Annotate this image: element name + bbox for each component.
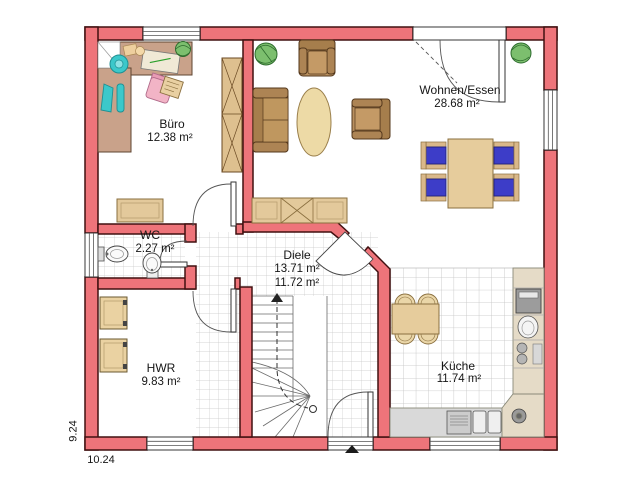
kitchen-counter-right bbox=[513, 268, 544, 394]
dimension-width: 10.24 bbox=[87, 454, 115, 467]
dining-chair bbox=[421, 174, 446, 201]
dining-table bbox=[448, 139, 493, 208]
room-area-buero: 12.38 m² bbox=[147, 132, 192, 145]
window-buero bbox=[143, 27, 200, 40]
desk-plant-icon bbox=[176, 42, 191, 57]
dimension-height: 9.24 bbox=[68, 420, 81, 441]
wall-bottom-3 bbox=[373, 437, 430, 450]
floor-plan-canvas: Büro 12.38 m² Wohnen/Essen 28.68 m² WC 2… bbox=[0, 0, 640, 480]
window-kueche bbox=[430, 437, 500, 450]
kitchen-counter-bottom bbox=[390, 408, 502, 437]
cooktop-burner bbox=[517, 343, 527, 353]
wohnen-sideboard bbox=[252, 198, 347, 223]
wall-bottom-2 bbox=[193, 437, 328, 450]
room-label-hwr: HWR bbox=[147, 362, 176, 375]
dishwasher bbox=[447, 411, 471, 434]
armchair-top bbox=[299, 40, 335, 76]
wall-hwr-stair bbox=[240, 287, 252, 437]
wall-bottom-4 bbox=[500, 437, 557, 450]
wall-buero-door-jamb bbox=[236, 224, 243, 234]
window-hwr bbox=[147, 437, 193, 450]
sink-basin bbox=[473, 411, 486, 433]
window-wc bbox=[85, 233, 98, 277]
room-area-kueche: 11.74 m² bbox=[437, 373, 482, 386]
window-wohnen-right bbox=[544, 90, 557, 150]
coffee-table bbox=[297, 88, 331, 156]
room-label-buero: Büro bbox=[159, 118, 184, 131]
wall-left-lower bbox=[85, 277, 98, 450]
wardrobe bbox=[222, 58, 242, 172]
floor-plan-svg bbox=[0, 0, 640, 480]
buero-sideboard bbox=[117, 199, 163, 222]
plant-top-left bbox=[255, 43, 277, 65]
wall-bottom-1 bbox=[85, 437, 147, 450]
wall-left-upper bbox=[85, 27, 98, 233]
room-label-diele: Diele bbox=[283, 249, 310, 262]
room-label-wohnen: Wohnen/Essen bbox=[419, 84, 500, 97]
stair-floor bbox=[252, 296, 327, 437]
washing-machine bbox=[100, 297, 127, 329]
wall-wc-right-upper bbox=[185, 224, 196, 242]
room-area-wc: 2.27 m² bbox=[136, 243, 175, 256]
dining-chair bbox=[494, 174, 519, 201]
plant-entrance bbox=[511, 43, 531, 63]
wall-wc-right-lower bbox=[185, 266, 196, 289]
cooktop-burner bbox=[517, 354, 527, 364]
room-area-diele-total: 13.71 m² bbox=[274, 263, 319, 276]
wall-wc-hwr bbox=[98, 278, 195, 289]
armchair-right bbox=[352, 99, 390, 139]
room-label-kueche: Küche bbox=[441, 360, 475, 373]
wall-right-lower bbox=[544, 150, 557, 450]
door-buero bbox=[193, 182, 236, 226]
kitchen-counter-corner bbox=[502, 394, 544, 437]
room-area-hwr: 9.83 m² bbox=[142, 376, 181, 389]
room-area-diele-net: 11.72 m² bbox=[275, 277, 320, 290]
teal-swivel-chair-icon bbox=[110, 55, 128, 73]
dining-chair bbox=[421, 142, 446, 169]
dryer bbox=[100, 339, 127, 372]
sink-drainer bbox=[488, 411, 501, 433]
wohnen-furniture bbox=[252, 40, 531, 223]
desk-bowl bbox=[136, 47, 145, 56]
room-area-wohnen: 28.68 m² bbox=[434, 98, 479, 111]
sofa bbox=[253, 88, 288, 152]
room-label-wc: WC bbox=[140, 229, 160, 242]
dining-chair bbox=[494, 142, 519, 169]
hwr-appliances bbox=[100, 297, 127, 372]
wc-sink bbox=[98, 246, 128, 262]
wall-right-upper bbox=[544, 27, 557, 90]
door-terrace-dashed-leaf bbox=[416, 42, 457, 83]
kitchen-table bbox=[392, 304, 439, 334]
wall-top-mid bbox=[200, 27, 413, 40]
